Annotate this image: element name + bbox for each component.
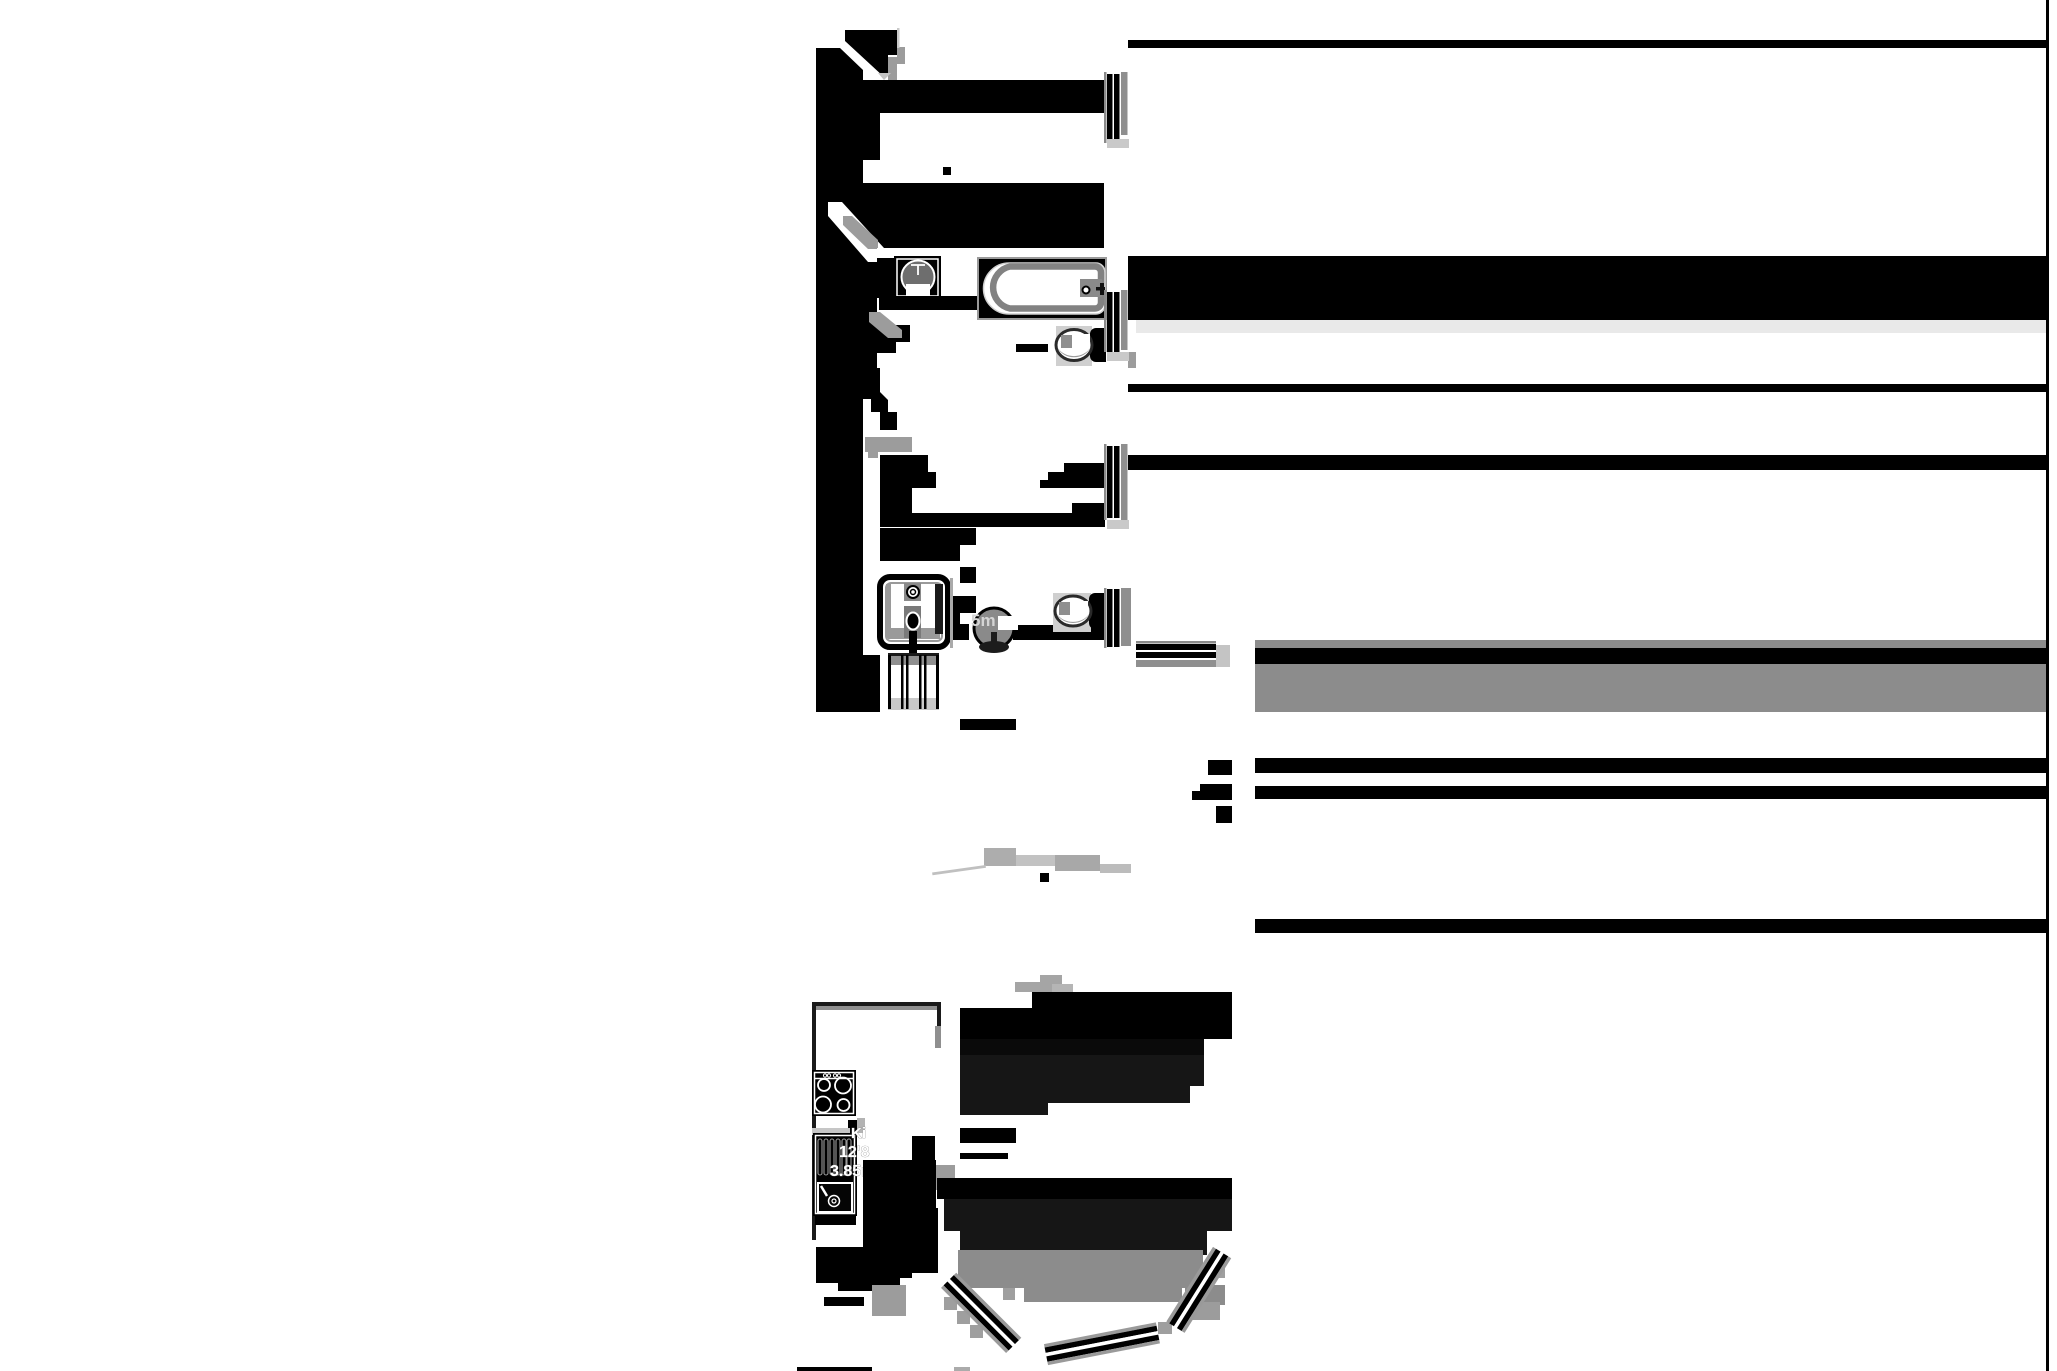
svg-text:12'8: 12'8 — [839, 1144, 870, 1161]
svg-text:5m: 5m — [971, 611, 996, 630]
svg-text:Ki: Ki — [851, 1125, 866, 1142]
